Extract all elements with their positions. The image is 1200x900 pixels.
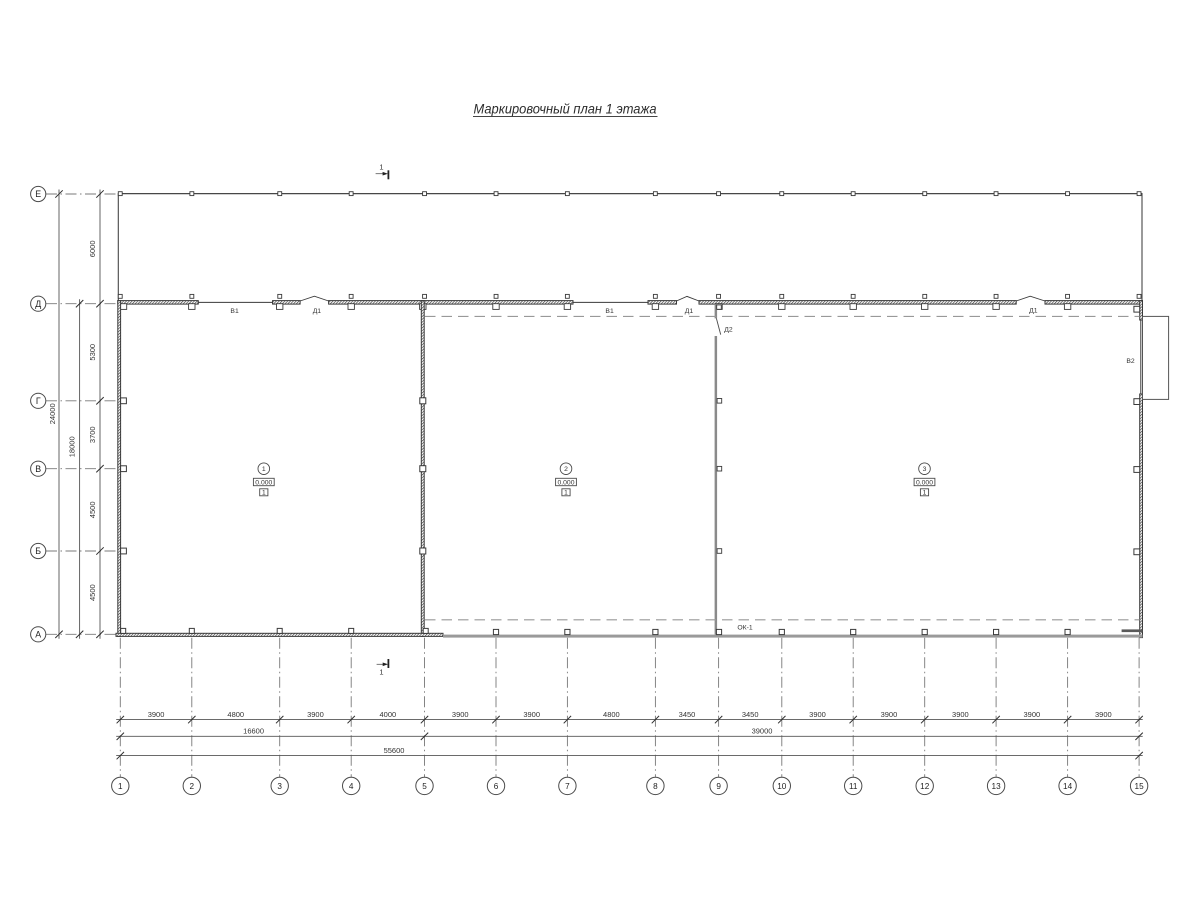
svg-text:3900: 3900 — [307, 710, 324, 719]
svg-text:3: 3 — [277, 782, 282, 791]
svg-text:4000: 4000 — [380, 710, 397, 719]
svg-text:7: 7 — [565, 782, 570, 791]
svg-text:3: 3 — [923, 466, 927, 473]
svg-text:3900: 3900 — [1095, 710, 1112, 719]
svg-text:1: 1 — [564, 490, 568, 497]
svg-text:18000: 18000 — [68, 436, 77, 457]
svg-text:39000: 39000 — [752, 727, 773, 736]
svg-text:4800: 4800 — [603, 710, 620, 719]
svg-text:1: 1 — [118, 782, 123, 791]
svg-text:В1: В1 — [230, 308, 239, 315]
svg-text:10: 10 — [777, 782, 787, 791]
svg-text:Д: Д — [35, 299, 41, 309]
svg-text:3900: 3900 — [952, 710, 969, 719]
svg-text:5: 5 — [422, 782, 427, 791]
svg-text:В1: В1 — [605, 308, 614, 315]
svg-text:ОК-1: ОК-1 — [737, 625, 753, 632]
svg-text:3700: 3700 — [88, 426, 97, 443]
svg-text:4500: 4500 — [88, 584, 97, 601]
svg-text:3900: 3900 — [881, 710, 898, 719]
svg-text:5300: 5300 — [88, 344, 97, 361]
svg-text:4: 4 — [349, 782, 354, 791]
svg-text:3900: 3900 — [809, 710, 826, 719]
svg-text:Маркировочный план 1 этажа: Маркировочный план 1 этажа — [474, 102, 657, 117]
svg-text:16600: 16600 — [243, 727, 264, 736]
svg-text:4800: 4800 — [227, 710, 244, 719]
svg-text:1: 1 — [262, 466, 266, 473]
svg-text:0.000: 0.000 — [916, 479, 933, 486]
svg-text:3900: 3900 — [452, 710, 469, 719]
svg-text:11: 11 — [849, 782, 858, 791]
svg-text:Г: Г — [36, 396, 41, 406]
svg-text:14: 14 — [1063, 782, 1073, 791]
svg-text:3900: 3900 — [148, 710, 165, 719]
svg-text:Д1: Д1 — [685, 308, 694, 315]
svg-text:2: 2 — [564, 466, 568, 473]
svg-text:Д1: Д1 — [1029, 308, 1038, 315]
svg-text:55600: 55600 — [384, 746, 405, 755]
svg-text:3450: 3450 — [679, 710, 696, 719]
svg-text:3900: 3900 — [1024, 710, 1041, 719]
svg-text:А: А — [35, 629, 41, 639]
svg-text:1: 1 — [379, 668, 383, 677]
svg-text:3450: 3450 — [742, 710, 759, 719]
svg-text:24000: 24000 — [48, 403, 57, 424]
svg-text:Д2: Д2 — [724, 327, 733, 334]
svg-text:Е: Е — [35, 189, 41, 199]
svg-text:В2: В2 — [1126, 358, 1135, 365]
svg-text:15: 15 — [1135, 782, 1145, 791]
svg-text:В: В — [35, 464, 41, 474]
svg-text:4500: 4500 — [88, 502, 97, 519]
svg-text:6000: 6000 — [88, 241, 97, 258]
svg-text:6: 6 — [494, 782, 499, 791]
svg-text:0.000: 0.000 — [557, 479, 574, 486]
svg-text:2: 2 — [190, 782, 195, 791]
svg-text:Д1: Д1 — [313, 308, 322, 315]
svg-text:1: 1 — [923, 490, 927, 497]
svg-text:1: 1 — [262, 490, 266, 497]
svg-text:8: 8 — [653, 782, 658, 791]
svg-text:Б: Б — [35, 546, 41, 556]
svg-text:13: 13 — [992, 782, 1002, 791]
svg-text:3900: 3900 — [523, 710, 540, 719]
svg-text:0.000: 0.000 — [255, 479, 272, 486]
svg-text:1: 1 — [379, 162, 383, 171]
svg-text:9: 9 — [716, 782, 721, 791]
svg-text:12: 12 — [920, 782, 930, 791]
